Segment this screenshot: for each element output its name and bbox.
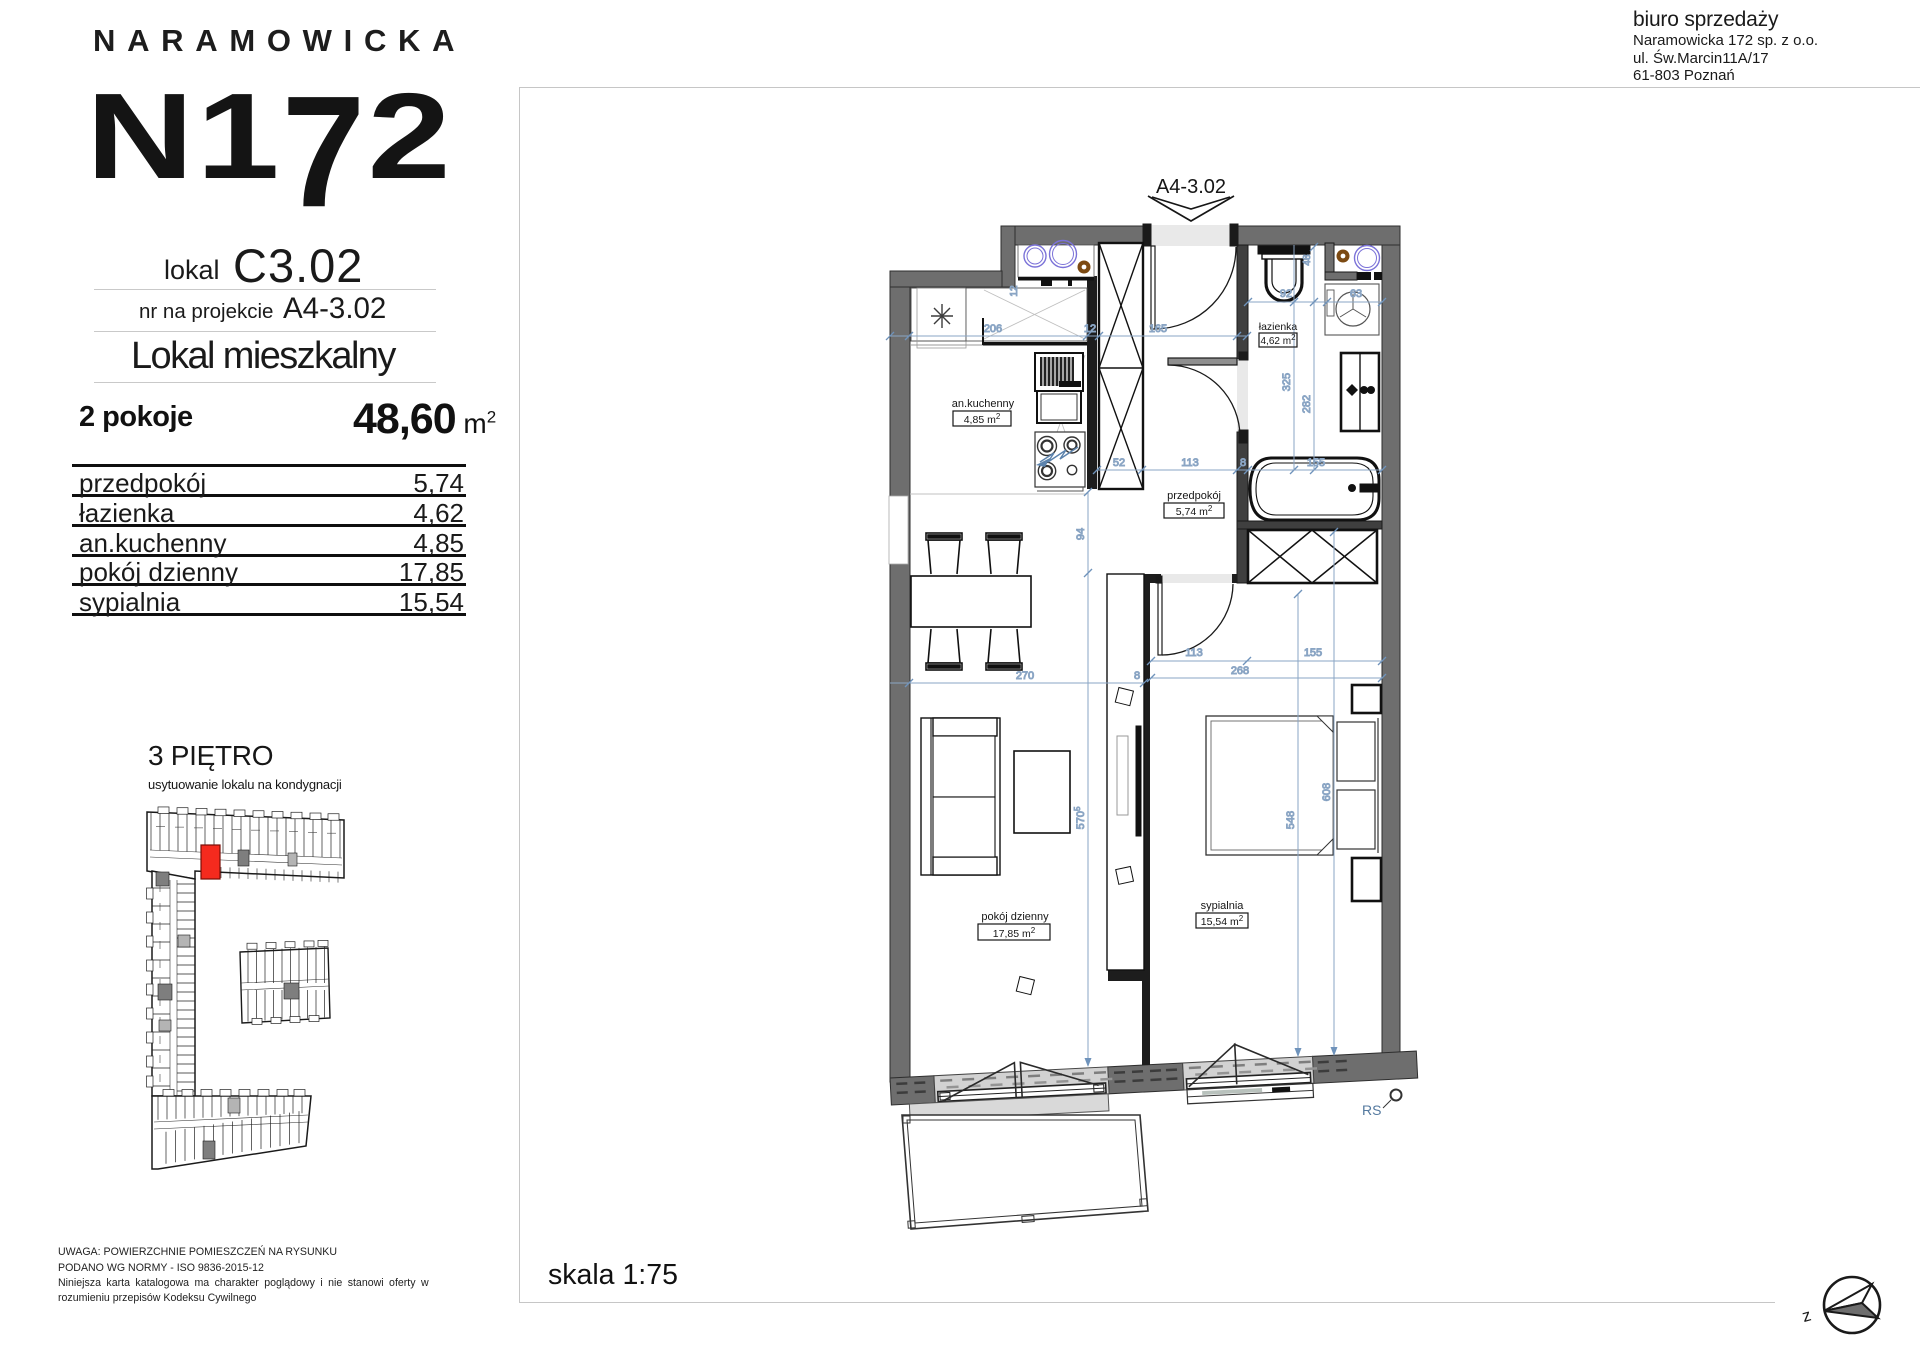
svg-text:155: 155 bbox=[1304, 647, 1322, 659]
svg-text:z: z bbox=[1800, 1305, 1813, 1326]
svg-text:63: 63 bbox=[1350, 288, 1362, 300]
svg-text:165: 165 bbox=[1149, 323, 1167, 335]
svg-text:282: 282 bbox=[1301, 395, 1313, 413]
svg-text:łazienka: łazienka bbox=[1259, 321, 1298, 333]
svg-text:sypialnia: sypialnia bbox=[1201, 900, 1245, 912]
svg-text:pokój dzienny: pokój dzienny bbox=[981, 911, 1049, 923]
svg-text:325: 325 bbox=[1281, 373, 1293, 391]
svg-text:przedpokój: przedpokój bbox=[1167, 490, 1221, 502]
svg-text:12: 12 bbox=[1084, 323, 1096, 335]
svg-text:15,54 m2: 15,54 m2 bbox=[1201, 914, 1244, 928]
svg-text:113: 113 bbox=[1185, 647, 1203, 659]
svg-text:608: 608 bbox=[1321, 783, 1333, 801]
svg-text:A4-3.02: A4-3.02 bbox=[1156, 176, 1226, 198]
svg-text:270: 270 bbox=[1016, 670, 1034, 682]
svg-text:RS: RS bbox=[1362, 1102, 1381, 1118]
svg-text:52: 52 bbox=[1113, 457, 1125, 469]
svg-text:4,62 m2: 4,62 m2 bbox=[1260, 333, 1296, 347]
svg-text:92: 92 bbox=[1280, 288, 1292, 300]
svg-text:5705: 5705 bbox=[1073, 806, 1087, 829]
svg-text:155: 155 bbox=[1307, 457, 1325, 469]
svg-text:4,85 m2: 4,85 m2 bbox=[964, 412, 1001, 426]
svg-text:94: 94 bbox=[1075, 528, 1087, 540]
svg-text:113: 113 bbox=[1181, 457, 1199, 469]
svg-text:206: 206 bbox=[984, 323, 1002, 335]
svg-text:17,85 m2: 17,85 m2 bbox=[993, 926, 1036, 940]
svg-text:an.kuchenny: an.kuchenny bbox=[952, 398, 1015, 410]
svg-text:5,74 m2: 5,74 m2 bbox=[1176, 504, 1213, 518]
svg-text:268: 268 bbox=[1231, 665, 1249, 677]
svg-text:8: 8 bbox=[1134, 670, 1140, 682]
svg-text:48: 48 bbox=[1302, 254, 1313, 266]
svg-text:12: 12 bbox=[1009, 285, 1020, 297]
svg-text:548: 548 bbox=[1285, 811, 1297, 829]
svg-text:8: 8 bbox=[1240, 457, 1246, 469]
